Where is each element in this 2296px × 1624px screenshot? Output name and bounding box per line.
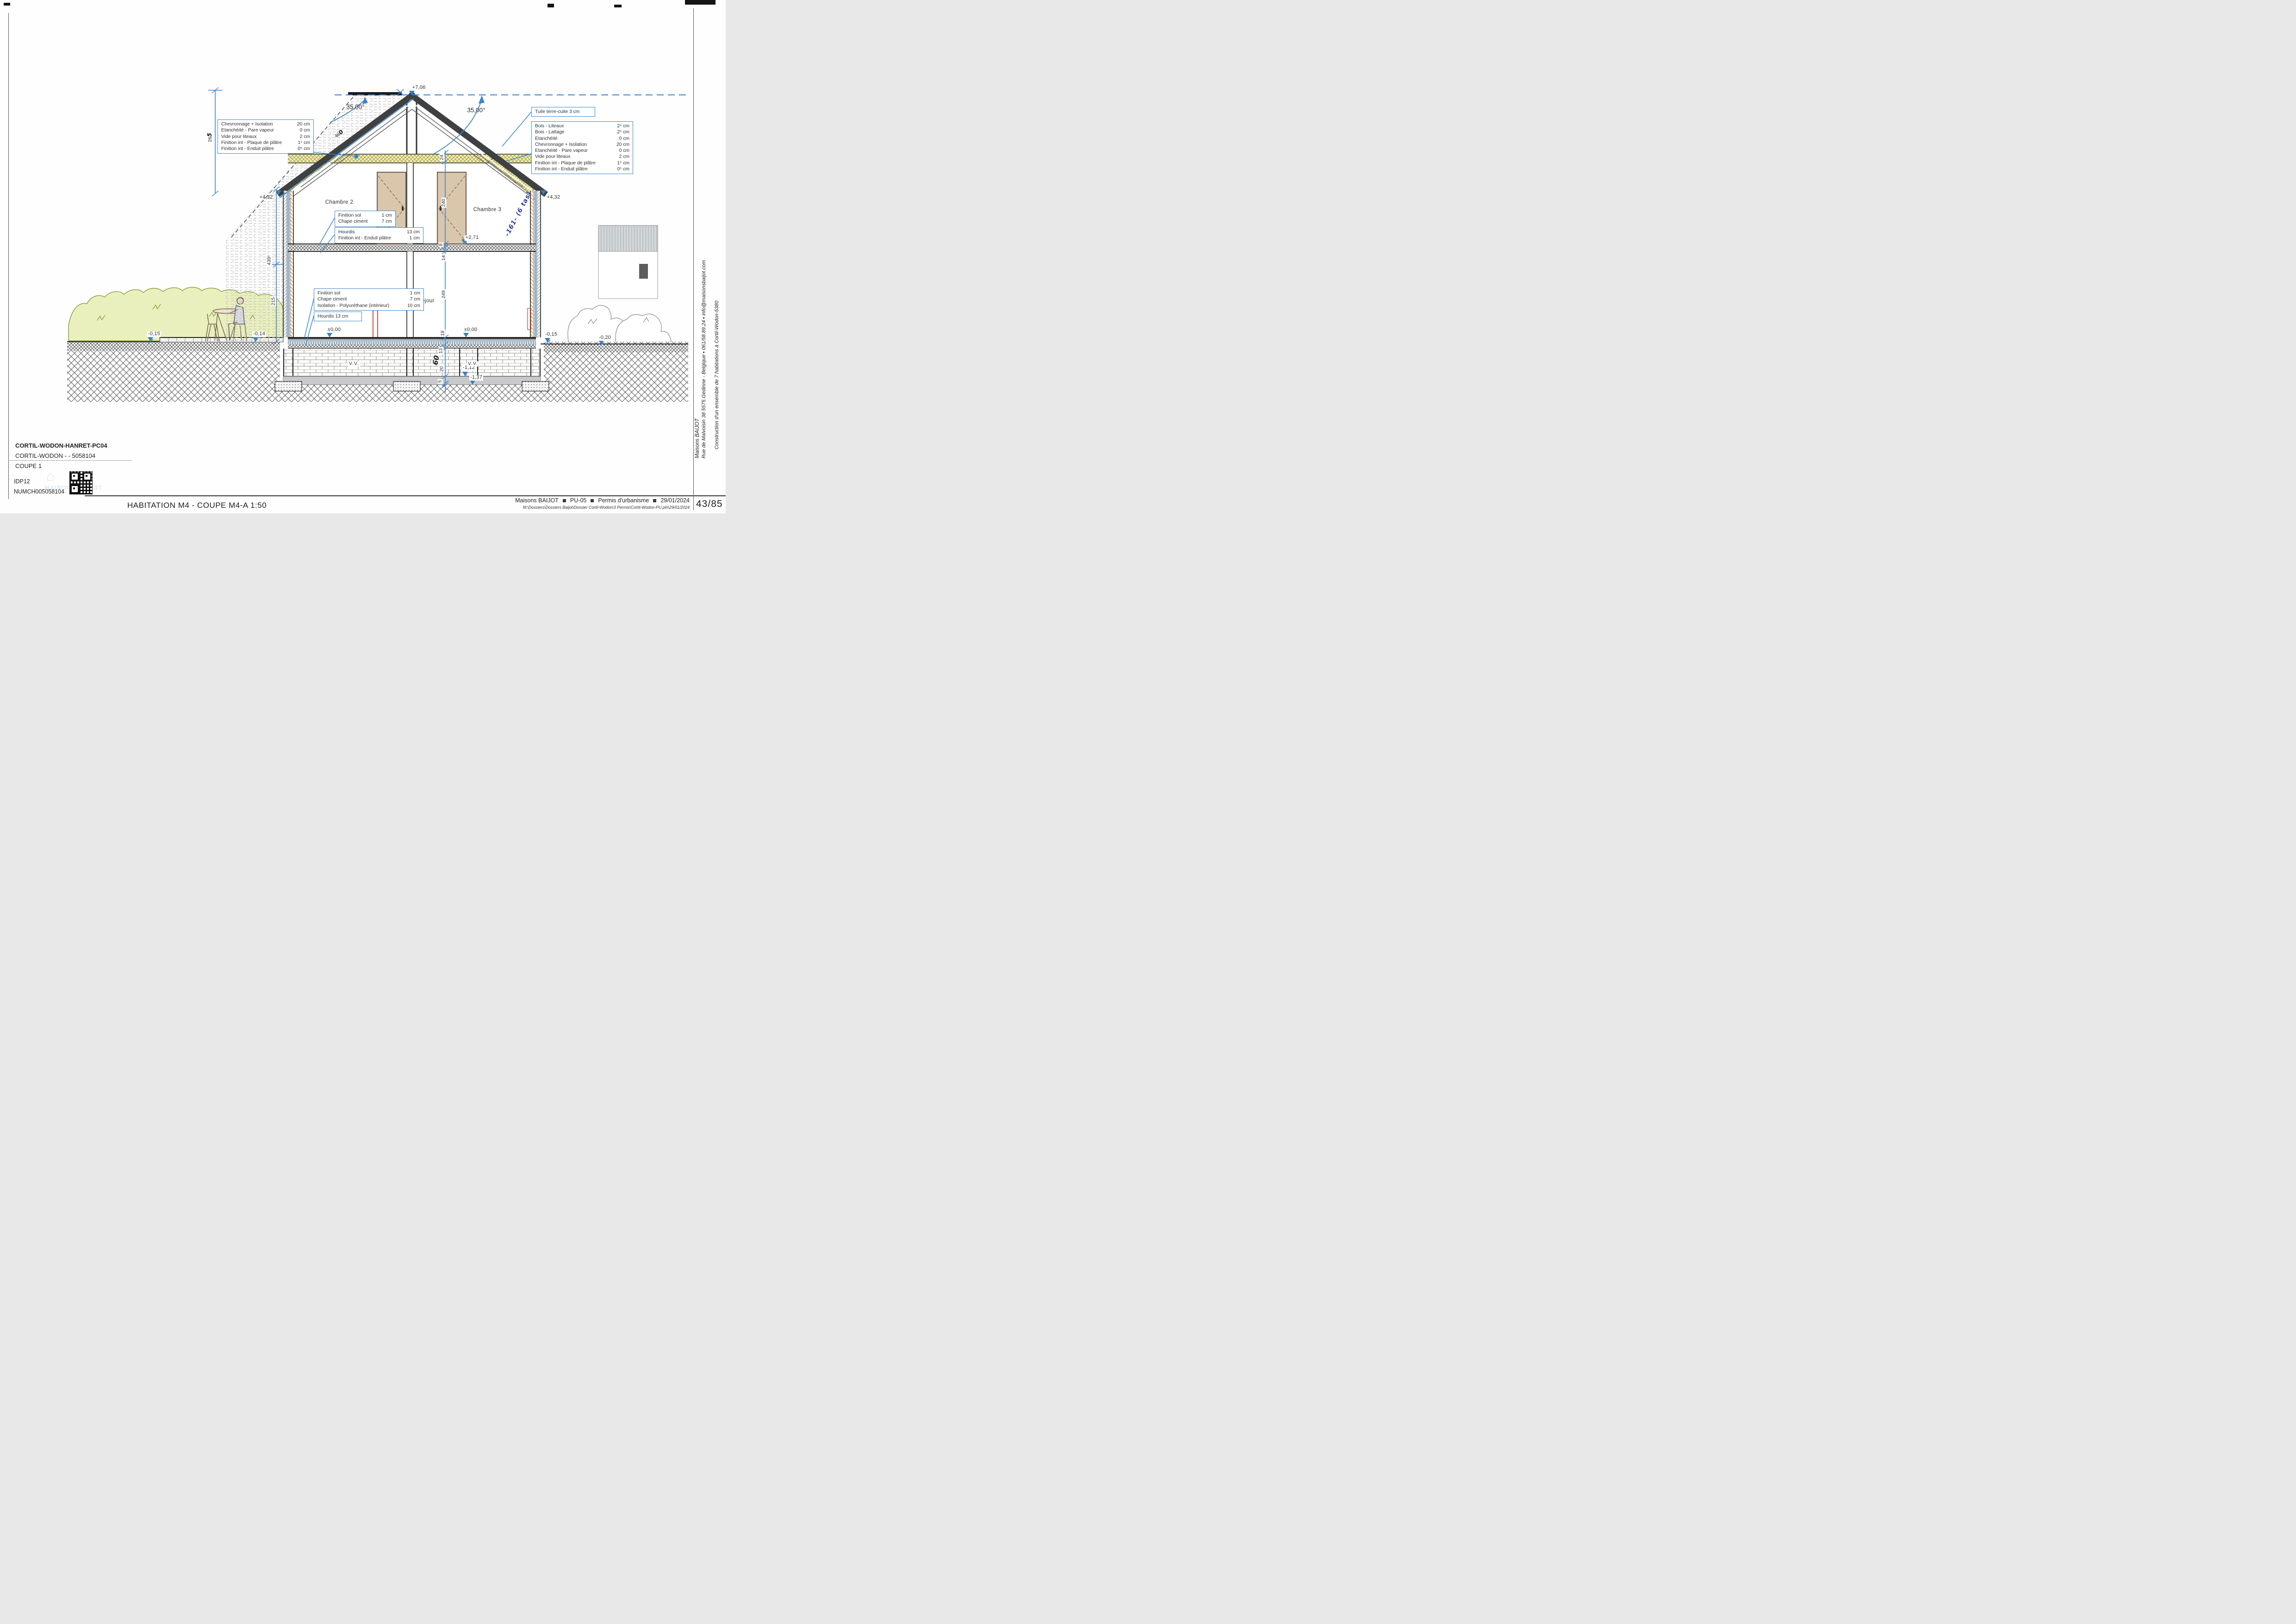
level-marker-terrain-right — [598, 340, 604, 345]
level-attic-left: +4,32 — [260, 194, 273, 200]
titleblock-project-code: CORTIL-WODON-HANRET-PC04 — [15, 442, 107, 449]
dim-facade-lower: 215 — [271, 296, 276, 306]
void-label-right: V.V. — [467, 361, 479, 366]
dim-240: 240 — [441, 198, 446, 208]
scan-artifact — [614, 5, 622, 7]
page-number: 43/85 — [696, 499, 723, 510]
level-terrace: -0,14 — [252, 331, 266, 337]
void-label-left: V.V. — [348, 361, 360, 366]
footer-company: Maisons BAIJOT — [515, 497, 559, 504]
callout-floor0-top: Finition sol1 cm Chape ciment7 cm Isolat… — [314, 288, 424, 311]
margin-company: Maisons BAIJOT — [695, 418, 700, 458]
footer-separator-icon — [591, 499, 594, 502]
level-marker-foundation — [470, 380, 475, 385]
callout-roof-left: Chevronnage + Isolation20 cm Etanchéité … — [218, 119, 314, 154]
level-terrain-left: -0,15 — [147, 331, 161, 337]
callout-tile: Tuile terre-cuite 3 cm — [531, 107, 595, 117]
footer-file-path: M:\Dossiers\Dossiers Baijot\Dossier Cort… — [523, 505, 690, 510]
level-ridge: +7,06 — [412, 85, 426, 90]
foundation — [275, 349, 549, 391]
right-border — [693, 8, 694, 510]
titleblock-sheet-name: COUPE 1 — [15, 462, 42, 469]
dim-14: 14 — [441, 254, 446, 262]
left-border — [8, 13, 9, 499]
level-marker-attic-left — [276, 190, 281, 195]
dim-8: 8 — [438, 243, 443, 247]
callout-floor1-slab: Hourdis13 cm Finition int - Enduit plâtr… — [335, 227, 423, 244]
level-marker-crawl — [462, 372, 468, 376]
drawing-sheet: +7,06 +4,32 +4,32 +2,71 ±0,00 ±0,00 -0,1… — [0, 0, 726, 513]
watermark-logo-icon: ⌂ — [46, 468, 55, 484]
footer-doc-code: PU-05 — [570, 497, 586, 504]
callout-roof-right: Bois - Liteaux2⁵ cm Bois - Lattage2⁵ cm … — [531, 121, 633, 174]
level-terrain-right: -0,20 — [598, 335, 612, 341]
level-marker-path-right — [545, 338, 550, 343]
neighbour-right — [568, 225, 671, 342]
level-foundation: -1,37 — [469, 375, 483, 381]
scan-artifact — [4, 3, 10, 6]
wall-right — [530, 191, 541, 337]
level-floor1: +2,71 — [465, 235, 480, 241]
level-marker-ridge — [409, 91, 415, 95]
dim-handwritten-60: 60 — [431, 355, 441, 366]
qr-code — [69, 471, 93, 494]
floor1-slab — [288, 244, 536, 251]
level-marker-ground-left — [327, 333, 332, 337]
footer-separator-icon — [563, 499, 566, 502]
callout-floor0-slab: Hourdis 13 cm — [314, 312, 362, 321]
roof-angle-right: 35,00° — [467, 107, 485, 114]
dim-13: 13 — [438, 347, 443, 355]
titleblock-divider — [9, 460, 132, 461]
dim-5: 5 — [437, 379, 442, 384]
scan-artifact — [548, 4, 554, 7]
level-marker-terrace — [253, 337, 258, 342]
wall-left — [283, 191, 293, 337]
level-marker-ground-right — [463, 333, 469, 337]
footer-line: Maisons BAIJOTPU-05Permis d'urbanisme29/… — [515, 497, 690, 504]
dim-20: 20 — [439, 365, 444, 373]
dim-facade-total: 439⁵ — [267, 254, 272, 266]
roof-angle-left: 35,00° — [346, 104, 364, 111]
drawing-title: HABITATION M4 - COUPE M4-A 1:50 — [127, 501, 267, 510]
footer-date: 29/01/2024 — [660, 497, 690, 504]
level-path-right: -0,15 — [544, 332, 558, 337]
dim-gable: 265 — [206, 133, 213, 142]
titleblock-project-ref: CORTIL-WODON - - 5058104 — [15, 452, 95, 459]
level-ground-right: ±0,00 — [464, 327, 477, 332]
margin-address: Rue de Malvoisin 38 5575 Gedinne - Belgi… — [701, 260, 707, 459]
level-attic-right: +4,32 — [547, 194, 560, 200]
footer-doc-type: Permis d'urbanisme — [598, 497, 649, 504]
footer-rule — [85, 495, 726, 496]
level-marker-attic-right — [541, 190, 546, 195]
titleblock-idp: IDP12 — [14, 478, 30, 485]
dim-18: 18 — [440, 330, 445, 337]
dim-249: 249 — [441, 289, 446, 300]
scan-artifact — [685, 0, 716, 5]
dim-24: 24 — [439, 154, 444, 161]
level-marker-terrain-left — [148, 337, 153, 342]
callout-floor1-top: Finition sol1 cm Chape ciment7 cm — [335, 211, 396, 227]
section-drawing — [0, 0, 726, 513]
floor0-slab — [288, 337, 536, 349]
room-label-bedroom2: Chambre 2 — [325, 200, 354, 205]
room-label-bedroom3: Chambre 3 — [473, 207, 502, 212]
footer-separator-icon — [653, 499, 656, 502]
level-ground-left: ±0,00 — [328, 327, 341, 332]
margin-project: Construction d'un ensemble de 7 habitati… — [714, 300, 720, 449]
